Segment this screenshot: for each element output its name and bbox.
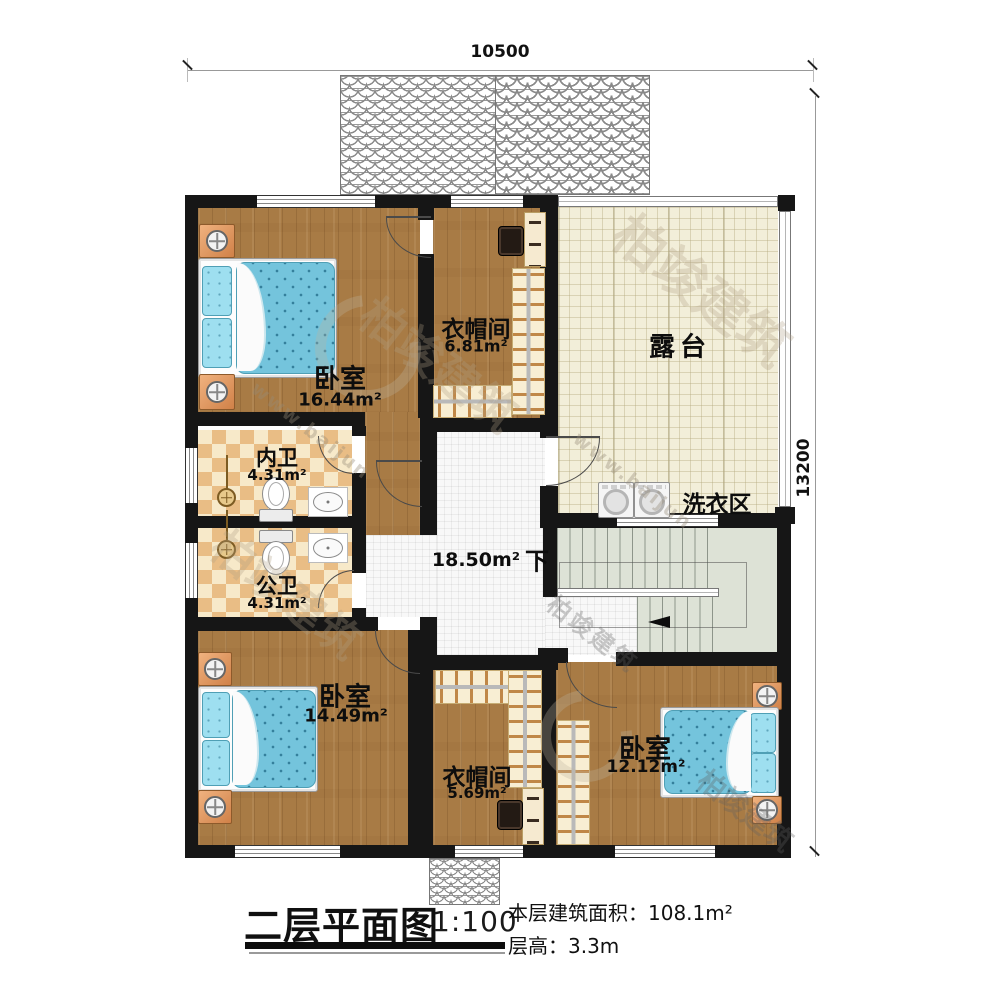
hall-floor-west	[366, 535, 437, 617]
wall-bedroomtl-closet	[418, 254, 434, 418]
wardrobe-hangers	[433, 385, 512, 418]
title-underline	[245, 942, 505, 949]
washing-machine	[598, 482, 634, 518]
wardrobe-hangers	[512, 268, 545, 415]
dimension-right-value: 13200	[794, 438, 814, 497]
lamp-icon	[206, 230, 228, 252]
wall-bath-east-1	[352, 426, 366, 436]
stairs-down-label: 下	[525, 542, 549, 577]
dresser-chair	[498, 226, 524, 256]
toilet-tank	[259, 509, 293, 522]
window-bath-inner	[185, 448, 198, 503]
window-bedroom-br	[615, 845, 715, 858]
wall-bath-east-2	[352, 473, 366, 573]
stairs-railing	[557, 588, 719, 597]
hall-area-label: 18.50m²	[432, 549, 520, 571]
lamp-icon	[206, 381, 228, 403]
floor-plan: 柏竣建筑 www.baijun 柏竣建筑 柏竣建筑 柏竣建筑 柏竣建筑 www.…	[0, 0, 1000, 990]
window-bedroom-tl	[257, 195, 375, 208]
stairs-direction-arrow	[648, 616, 670, 628]
lamp-icon	[756, 685, 778, 707]
wardrobe-hangers	[435, 670, 510, 704]
dresser-cabinet	[524, 212, 546, 267]
pillow	[202, 266, 232, 316]
floor-height-text: 层高：3.3m	[508, 930, 619, 959]
terrace-post-se	[775, 507, 795, 524]
wall-corridor-east	[420, 418, 437, 535]
shower-valve-icon	[217, 540, 236, 559]
wall-top-1	[185, 195, 257, 208]
window-closet-bottom	[455, 845, 523, 858]
room-area-bath-public: 4.31m²	[247, 594, 306, 612]
shower-valve-icon	[217, 488, 236, 507]
roof-hatch-bottom	[429, 858, 500, 905]
wall-bedroombr-north	[616, 652, 777, 666]
pillow	[750, 753, 776, 793]
wall-bedroombr-north-stub	[538, 648, 568, 663]
roof-hatch-right	[495, 75, 650, 195]
title-underline-thin	[249, 952, 505, 954]
room-label-laundry: 洗衣区	[683, 485, 752, 519]
room-area-closet-bottom: 5.69m²	[447, 784, 506, 802]
room-label-terrace: 露台	[649, 327, 711, 364]
terrace-railing-top	[558, 196, 778, 207]
wardrobe-hangers	[557, 720, 590, 845]
room-area-bedroom-tl: 16.44m²	[298, 390, 382, 411]
window-closet-top	[451, 195, 523, 208]
sink-basin	[313, 538, 343, 558]
dimension-line-right	[815, 96, 816, 857]
pillow	[750, 713, 776, 753]
room-area-bedroom-br: 12.12m²	[607, 757, 686, 777]
dimension-ext-top-left	[187, 58, 188, 82]
window-bath-public	[185, 543, 198, 598]
terrace-post-ne	[778, 195, 795, 211]
pillow	[202, 740, 230, 786]
window-bedroom-bl	[235, 845, 340, 858]
room-area-bedroom-bl: 14.49m²	[304, 706, 388, 727]
dresser-chair	[497, 800, 523, 830]
plan-scale: 1:100	[432, 905, 518, 938]
room-area-closet-top: 6.81m²	[444, 337, 507, 356]
lamp-icon	[204, 658, 226, 680]
dimension-ext-top-right	[813, 58, 814, 82]
terrace-railing-right	[779, 211, 791, 507]
room-area-bath-inner: 4.31m²	[247, 466, 306, 484]
wall-closettop-south	[433, 418, 545, 432]
roof-hatch-left	[340, 75, 496, 195]
shower-stem	[226, 455, 228, 489]
pillow	[202, 692, 230, 738]
wall-bedroomtl-south	[185, 412, 365, 426]
sink-basin	[313, 492, 343, 512]
dimension-line-top	[187, 70, 813, 71]
lamp-icon	[204, 796, 226, 818]
floor-area-text: 本层建筑面积：108.1m²	[508, 897, 733, 926]
dresser-cabinet	[522, 788, 544, 845]
pillow	[202, 318, 232, 368]
shower-stem	[226, 510, 228, 540]
washing-machine	[634, 482, 670, 518]
dimension-top-value: 10500	[470, 42, 529, 62]
wall-top-2	[375, 195, 451, 208]
wall-bedroombl-north	[185, 617, 378, 631]
wardrobe-hangers	[508, 670, 542, 788]
lamp-icon	[756, 799, 778, 821]
